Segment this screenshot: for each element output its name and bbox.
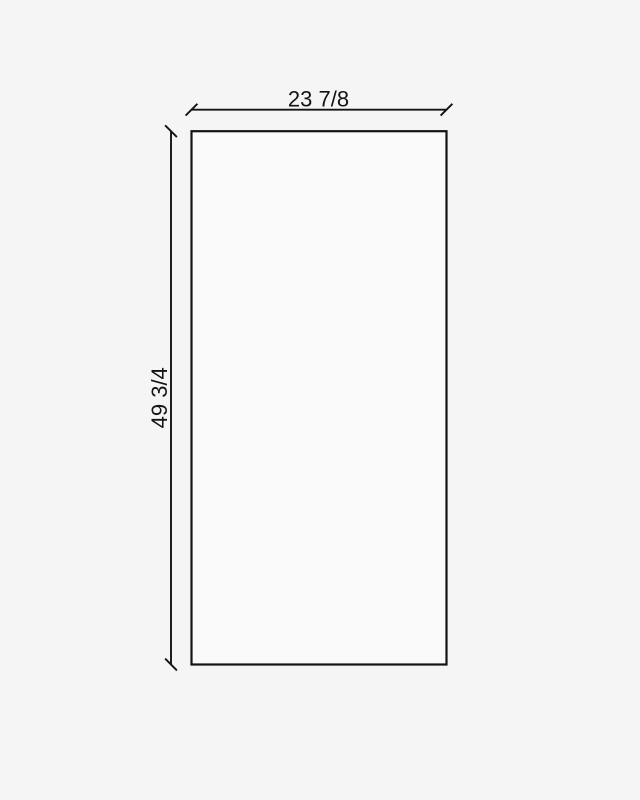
svg-text:23 7/8: 23 7/8 <box>288 87 349 112</box>
svg-text:49 3/4: 49 3/4 <box>147 367 172 428</box>
